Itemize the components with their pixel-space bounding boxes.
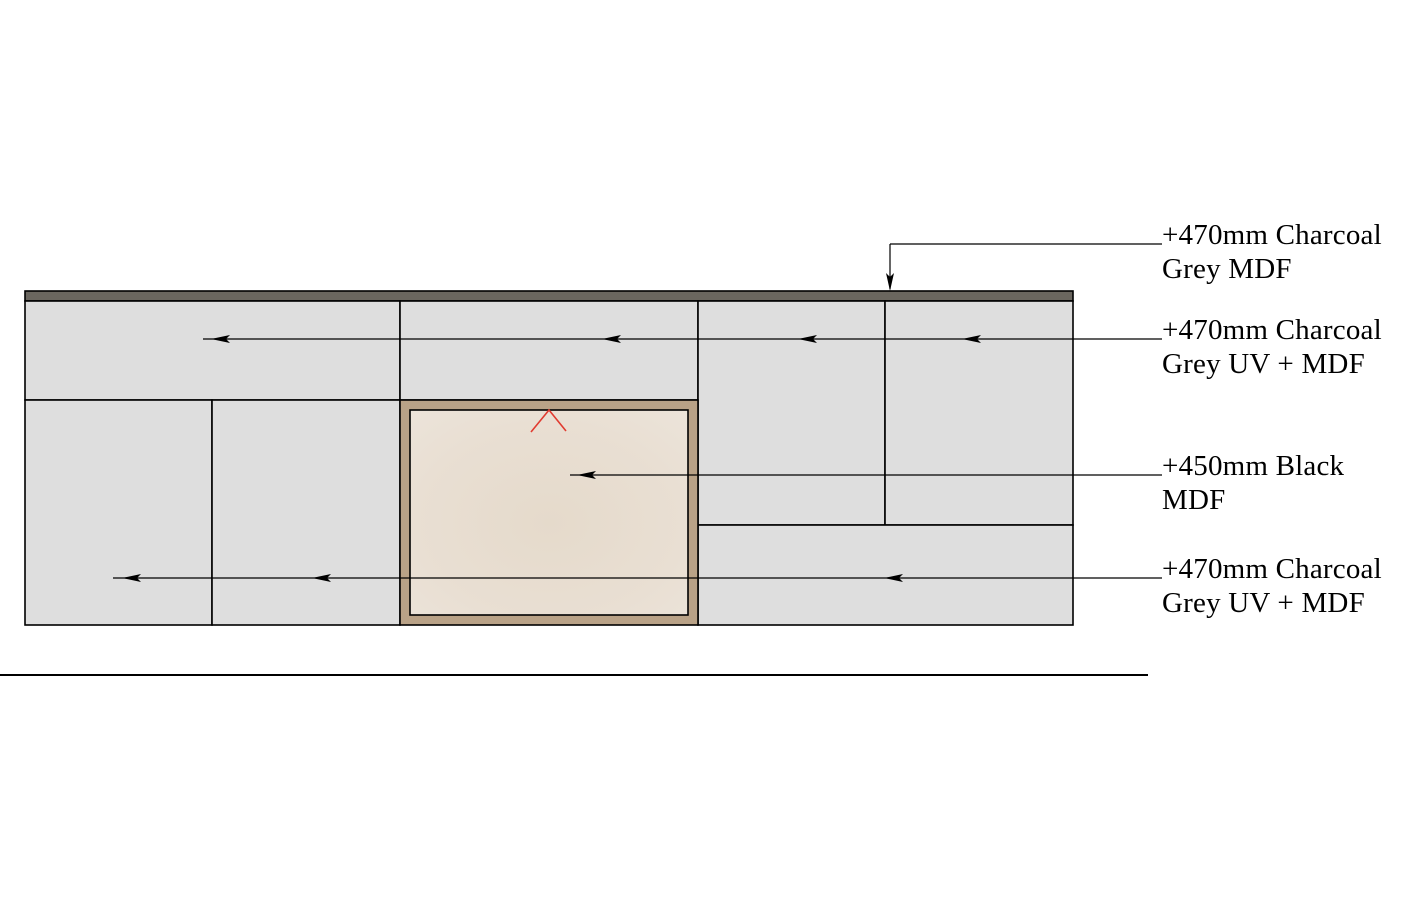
top-mdf-strip	[25, 291, 1073, 301]
annotation-note-black-mdf: +450mm Black MDF	[1162, 449, 1344, 517]
right-tall-door-1	[698, 301, 885, 525]
annotation-line: Grey UV + MDF	[1162, 347, 1382, 381]
lower-left-door-1	[25, 400, 212, 625]
right-tall-door-2	[885, 301, 1073, 525]
annotation-line: Grey MDF	[1162, 252, 1382, 286]
upper-left-door	[25, 301, 400, 400]
annotation-line: MDF	[1162, 483, 1344, 517]
annotation-line: +470mm Charcoal	[1162, 552, 1382, 586]
annotation-line: +470mm Charcoal	[1162, 313, 1382, 347]
upper-middle-door	[400, 301, 698, 400]
appliance-recess	[410, 410, 688, 615]
annotation-note-lower-band: +470mm Charcoal Grey UV + MDF	[1162, 552, 1382, 620]
elevation-drawing-canvas: +470mm Charcoal Grey MDF +470mm Charcoal…	[0, 0, 1423, 921]
lower-left-door-2	[212, 400, 400, 625]
annotation-line: +470mm Charcoal	[1162, 218, 1382, 252]
annotation-line: Grey UV + MDF	[1162, 586, 1382, 620]
annotation-line: +450mm Black	[1162, 449, 1344, 483]
panels-layer	[25, 291, 1073, 625]
lower-right-door	[698, 525, 1073, 625]
annotation-note-top-strip: +470mm Charcoal Grey MDF	[1162, 218, 1382, 286]
leader-top-strip	[886, 244, 1162, 291]
annotation-note-upper-band: +470mm Charcoal Grey UV + MDF	[1162, 313, 1382, 381]
